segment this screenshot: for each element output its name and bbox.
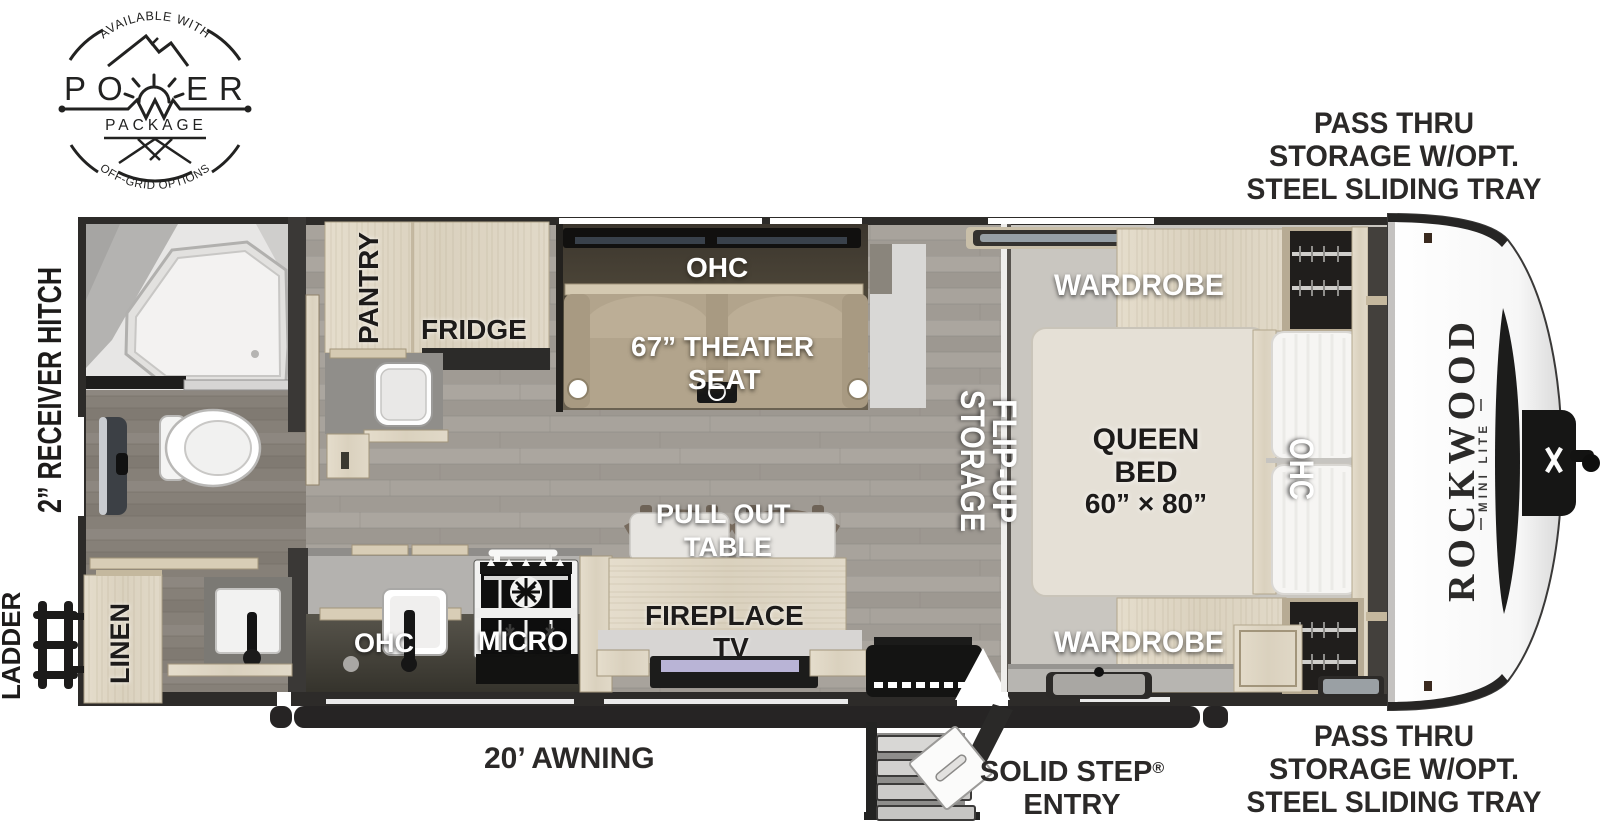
svg-text:SOLID STEP®: SOLID STEP®	[980, 756, 1164, 788]
svg-text:QUEEN: QUEEN	[1093, 423, 1200, 456]
svg-text:FRIDGE: FRIDGE	[421, 314, 527, 345]
svg-text:WARDROBE: WARDROBE	[1054, 626, 1224, 659]
svg-text:20’ AWNING: 20’ AWNING	[484, 742, 655, 775]
svg-text:ROCKWOOD: ROCKWOOD	[1441, 322, 1483, 602]
svg-text:2” RECEIVER HITCH: 2” RECEIVER HITCH	[31, 267, 68, 513]
svg-text:PASS THRU: PASS THRU	[1314, 107, 1474, 140]
svg-text:SEAT: SEAT	[688, 364, 761, 395]
svg-text:STORAGE W/OPT.: STORAGE W/OPT.	[1269, 753, 1519, 786]
svg-text:STORAGE: STORAGE	[953, 390, 991, 532]
svg-text:STEEL SLIDING TRAY: STEEL SLIDING TRAY	[1247, 786, 1542, 819]
svg-text:67” THEATER: 67” THEATER	[631, 331, 814, 362]
svg-text:OFF-GRID OPTIONS: OFF-GRID OPTIONS	[97, 162, 212, 192]
svg-text:R: R	[219, 70, 243, 107]
svg-text:E: E	[186, 70, 208, 107]
svg-text:OHC: OHC	[354, 628, 414, 658]
svg-text:OHC: OHC	[686, 252, 748, 283]
svg-text:60” × 80”: 60” × 80”	[1085, 488, 1207, 519]
svg-text:STORAGE W/OPT.: STORAGE W/OPT.	[1269, 140, 1519, 173]
svg-text:STEEL SLIDING TRAY: STEEL SLIDING TRAY	[1247, 173, 1542, 206]
svg-text:WARDROBE: WARDROBE	[1054, 269, 1224, 302]
svg-text:BED: BED	[1114, 456, 1177, 489]
svg-text:LINEN: LINEN	[105, 603, 135, 684]
svg-text:LADDER: LADDER	[0, 591, 26, 700]
svg-text:P: P	[64, 70, 86, 107]
svg-text:MINI LITE: MINI LITE	[1478, 424, 1490, 512]
svg-text:PASS THRU: PASS THRU	[1314, 720, 1474, 753]
svg-text:FIREPLACE: FIREPLACE	[645, 600, 804, 631]
svg-text:PANTRY: PANTRY	[353, 232, 384, 344]
svg-text:AVAILABLE WITH: AVAILABLE WITH	[97, 9, 214, 41]
svg-text:MICRO: MICRO	[478, 626, 568, 656]
svg-text:PACKAGE: PACKAGE	[105, 117, 207, 134]
svg-text:ENTRY: ENTRY	[1023, 789, 1120, 821]
svg-text:OHC: OHC	[1282, 438, 1320, 500]
svg-text:PULL OUT: PULL OUT	[656, 499, 791, 529]
svg-text:O: O	[97, 70, 123, 107]
